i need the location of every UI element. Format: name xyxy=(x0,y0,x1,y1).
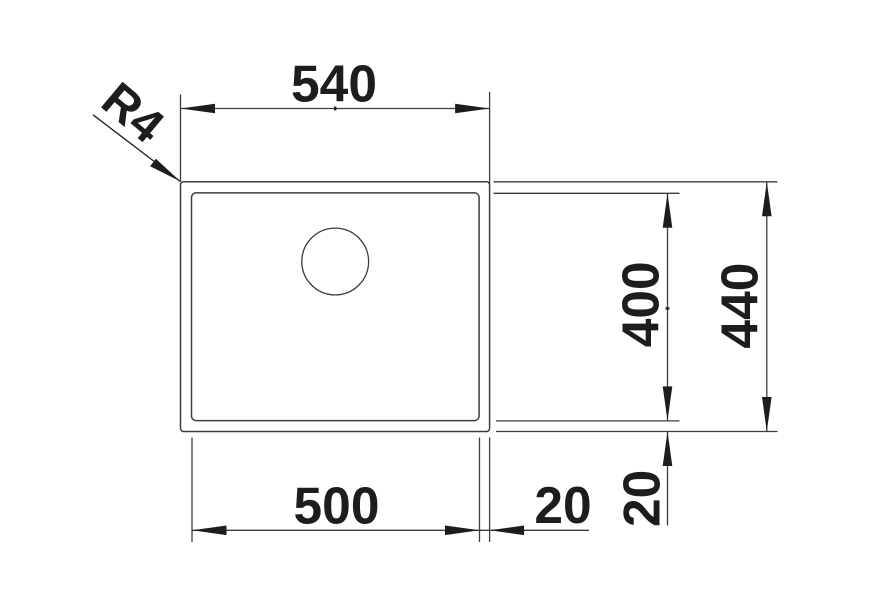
svg-text:540: 540 xyxy=(291,55,377,113)
svg-text:20: 20 xyxy=(534,476,591,534)
svg-text:R4: R4 xyxy=(92,72,174,153)
svg-text:400: 400 xyxy=(611,261,669,347)
svg-text:440: 440 xyxy=(710,263,768,349)
svg-text:500: 500 xyxy=(294,477,380,535)
svg-text:20: 20 xyxy=(613,470,671,527)
